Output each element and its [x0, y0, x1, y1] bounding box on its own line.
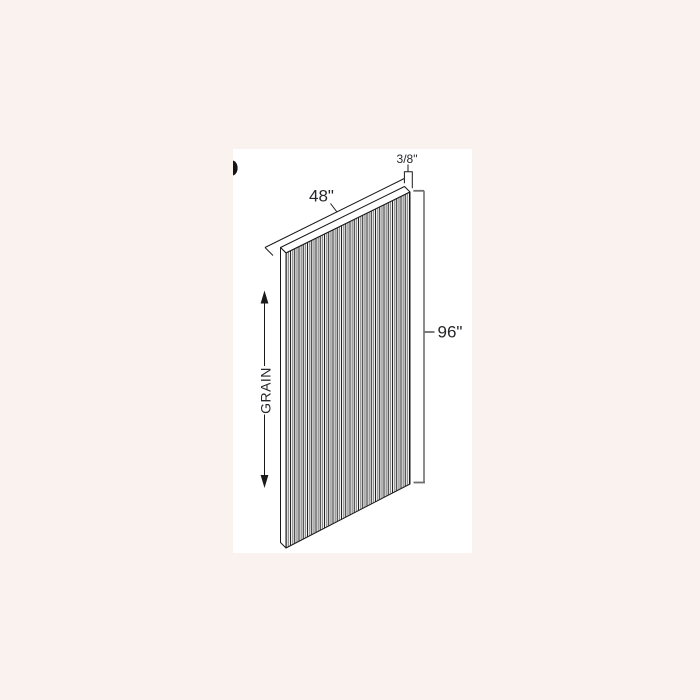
thickness-dimension-label: 3/8"	[397, 152, 418, 166]
panel-left-edge-face	[281, 248, 287, 549]
height-dimension-label: 96"	[438, 323, 463, 342]
panel	[281, 187, 411, 549]
page-background: 48" 3/8" 96" GRAIN	[0, 0, 700, 700]
panel-diagram: 48" 3/8" 96" GRAIN	[0, 0, 700, 700]
width-dimension-label: 48"	[309, 187, 334, 206]
grain-label: GRAIN	[258, 367, 274, 414]
